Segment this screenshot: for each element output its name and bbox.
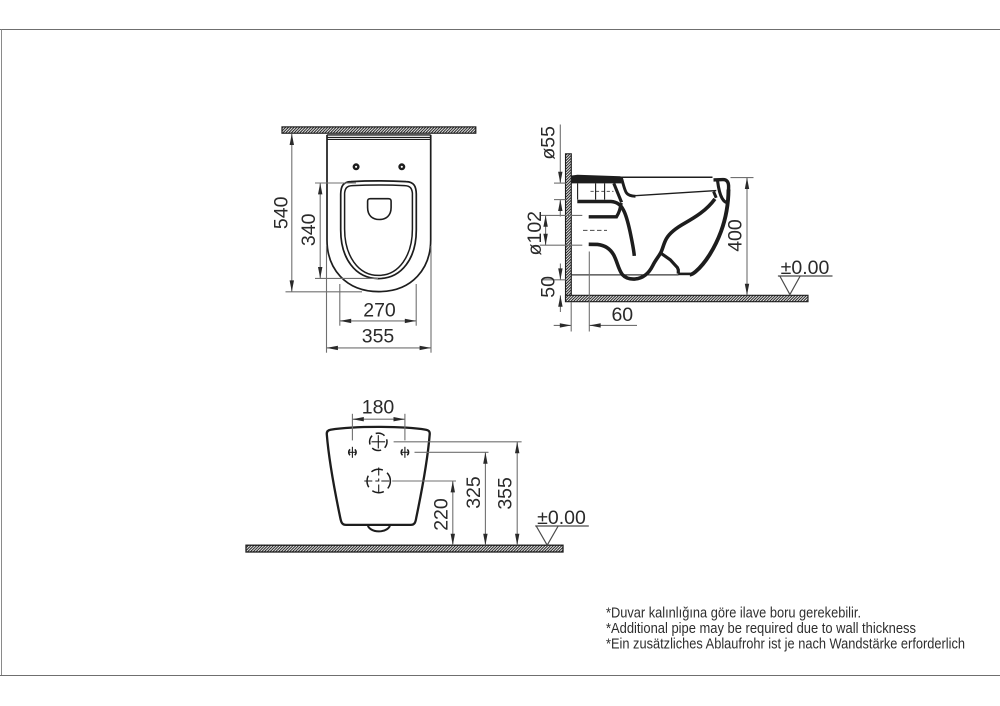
svg-text:355: 355 [362,326,395,348]
svg-text:325: 325 [463,476,485,509]
svg-text:355: 355 [494,477,516,510]
svg-text:180: 180 [362,397,395,419]
svg-text:60: 60 [611,304,633,326]
svg-text:ø55: ø55 [537,126,559,160]
svg-text:*Additional pipe may be requir: *Additional pipe may be required due to … [606,620,916,637]
svg-text:270: 270 [363,300,396,322]
svg-text:*Ein zusätzliches Ablaufrohr i: *Ein zusätzliches Ablaufrohr ist je nach… [606,636,965,653]
svg-text:50: 50 [537,276,559,298]
svg-text:340: 340 [298,213,320,246]
svg-text:220: 220 [430,498,452,531]
svg-text:ø102: ø102 [524,211,546,255]
svg-text:*Duvar kalınlığına göre ilave: *Duvar kalınlığına göre ilave boru gerek… [606,605,861,622]
svg-text:400: 400 [725,219,747,252]
svg-text:540: 540 [271,196,293,229]
